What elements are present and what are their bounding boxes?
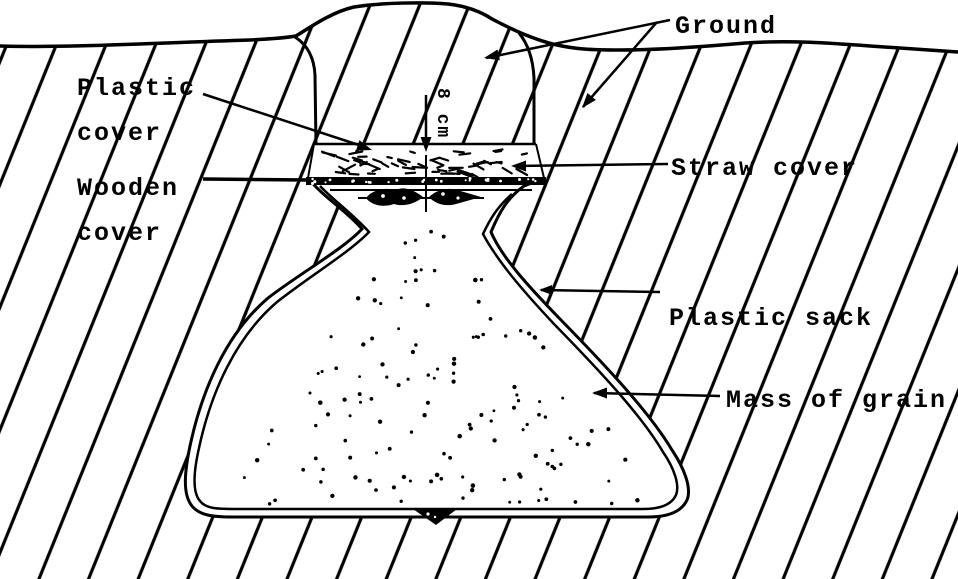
ground-label: Ground <box>675 4 777 49</box>
plastic-cover-label: Plastic cover <box>77 66 196 156</box>
straw-depth-label: 8 cm <box>432 88 452 139</box>
mass-of-grain-label: Mass of grain <box>726 378 947 423</box>
grain-pit-diagram: Ground Plastic cover Wooden cover Straw … <box>0 0 958 579</box>
plastic-sack-label: Plastic sack <box>669 296 873 341</box>
wooden-cover-label: Wooden cover <box>77 166 179 256</box>
straw-cover-label: Straw cover <box>671 146 858 191</box>
